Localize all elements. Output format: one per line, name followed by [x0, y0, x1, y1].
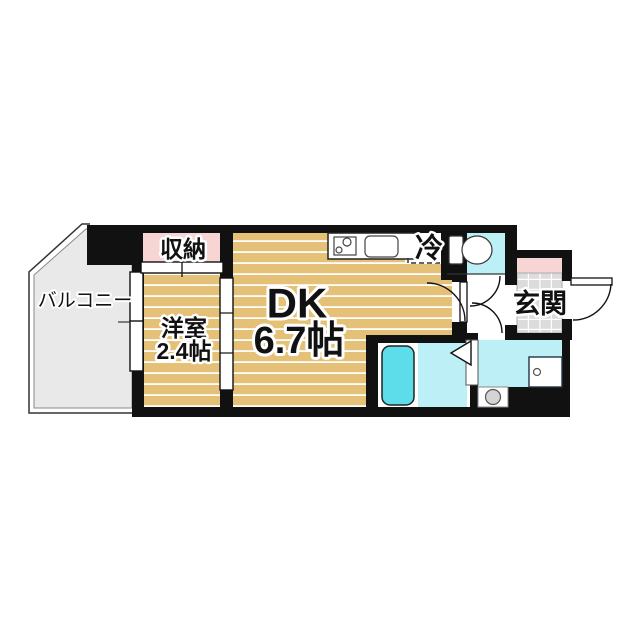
room-sliding-door	[220, 278, 233, 390]
balcony-label: バルコニー	[38, 291, 133, 312]
western-room-size: 2.4帖	[157, 338, 212, 364]
kitchen-sink-icon	[365, 236, 398, 257]
vanity	[529, 357, 562, 387]
toilet-icon	[449, 236, 492, 264]
washing-machine-icon	[486, 390, 501, 405]
toilet-bowl	[462, 236, 492, 264]
floorplan-canvas: バルコニー 収納 洋室 2.4帖 DK 6.7帖 冷 玄関	[0, 0, 640, 640]
bathtub-icon	[382, 346, 414, 405]
toilet-door-arc	[470, 276, 500, 306]
entrance-cabinet	[517, 258, 562, 273]
toilet-tank	[449, 236, 463, 264]
entrance-label: 玄関	[513, 288, 567, 319]
entrance-door-leaf	[571, 278, 612, 285]
window-lower	[130, 321, 143, 371]
kitchen-counter	[328, 233, 420, 259]
dk-door-leaf	[460, 282, 467, 322]
refrigerator-label: 冷	[415, 233, 443, 264]
washroom-door-arc	[472, 303, 502, 333]
entrance-door-arc	[573, 284, 611, 320]
basin-drain	[534, 369, 541, 376]
dk-size: 6.7帖	[254, 320, 345, 362]
closet-label: 収納	[160, 236, 206, 262]
washing-machine-area	[478, 387, 508, 407]
